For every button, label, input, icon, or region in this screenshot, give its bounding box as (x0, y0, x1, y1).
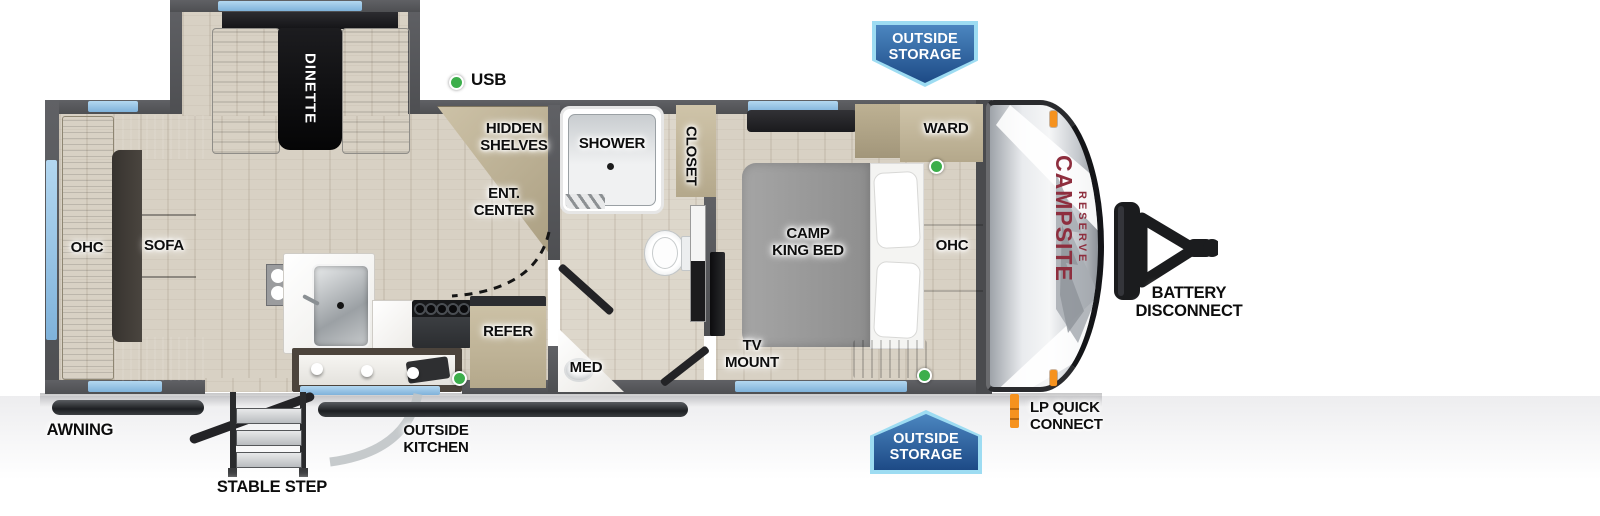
ohc-front-cabinet (920, 162, 983, 352)
badge-outside-storage-top-label: OUTSIDE STORAGE (889, 31, 962, 77)
knob-icon (311, 363, 323, 375)
stove (412, 300, 472, 348)
knob-icon (361, 365, 373, 377)
shower-threshold (565, 194, 605, 209)
kitchen-sink (312, 264, 370, 348)
window-bottom-bedroom (735, 381, 907, 392)
slide-window (218, 1, 362, 11)
badge-outside-storage-top: OUTSIDE STORAGE (872, 21, 978, 87)
burner-icon (438, 305, 446, 313)
burner-icon (427, 305, 435, 313)
window-bottom-rear (88, 381, 162, 392)
bath-cabinet (690, 205, 706, 322)
slide-wall-left (170, 0, 182, 114)
shower-label: SHOWER (572, 136, 652, 153)
lp-quick-connect-label: LP QUICK CONNECT (1030, 400, 1110, 433)
kitchen-counter-ext (372, 300, 416, 354)
med-label: MED (556, 360, 616, 377)
sofa-armrest-bottom (114, 337, 206, 381)
hidden-shelves-label: HIDDEN SHELVES (468, 121, 560, 154)
awning-tube-left (52, 400, 204, 415)
entry-step (228, 392, 308, 478)
bed-head-cabinet (855, 104, 903, 158)
lp-quick-connect-fitting (1010, 394, 1019, 428)
ohc-front-label: OHC (926, 238, 978, 255)
knob-icon (407, 367, 419, 379)
brand-name: CAMPSITE (1050, 155, 1077, 335)
dinette-label: DINETTE (302, 53, 319, 124)
roof-vent (747, 110, 857, 132)
closet-label: CLOSET (682, 120, 699, 192)
ohc-rear-label: OHC (62, 240, 112, 257)
window-rear-wall (46, 160, 57, 340)
dinette-table: DINETTE (278, 28, 342, 150)
usb-indicator-kitchen (452, 371, 467, 386)
burner-icon (460, 305, 468, 313)
clearance-light-bottom (1050, 370, 1057, 386)
entry-floor-patch (205, 378, 292, 392)
toilet (644, 230, 686, 276)
usb-indicator-dinette (449, 75, 464, 90)
refrigerator (470, 296, 546, 388)
front-cap: CAMPSITE RESERVE (986, 100, 1104, 392)
dinette-bench-right (342, 28, 410, 154)
awning-label: AWNING (38, 421, 122, 439)
pillow (873, 171, 921, 249)
tv (710, 252, 725, 336)
shower-drain-icon (607, 163, 614, 170)
shower (560, 106, 664, 214)
sofa-label: SOFA (134, 238, 194, 255)
sink-drain-icon (337, 302, 344, 309)
tv-mount-label: TV MOUNT (712, 338, 792, 371)
pillow (873, 261, 921, 339)
outside-kitchen-label: OUTSIDE KITCHEN (394, 423, 478, 456)
refer-label: REFER (478, 324, 538, 341)
bed-foot-bench (853, 340, 927, 378)
ward-label: WARD (916, 121, 976, 138)
badge-outside-storage-bottom-label: OUTSIDE STORAGE (890, 421, 963, 463)
ent-center-label: ENT. CENTER (462, 186, 546, 219)
slide-overhead-panel (222, 12, 398, 29)
window-outside-kitchen (300, 386, 440, 395)
battery-disconnect-label: BATTERY DISCONNECT (1120, 284, 1258, 320)
usb-indicator-bed-top (929, 159, 944, 174)
awning-tube-right (318, 402, 688, 417)
window-top-rear (88, 101, 138, 112)
brand-series: RESERVE (1076, 191, 1088, 301)
clearance-light-top (1050, 111, 1057, 127)
floorplan-canvas: DINETTE (0, 0, 1600, 516)
camp-king-bed-label: CAMP KING BED (758, 226, 858, 259)
stable-step-label: STABLE STEP (212, 478, 332, 496)
dinette-bench-left (212, 28, 280, 154)
bed-sheets (870, 163, 924, 349)
usb-indicator-bed-bottom (917, 368, 932, 383)
badge-outside-storage-bottom: OUTSIDE STORAGE (870, 410, 982, 474)
burner-icon (449, 305, 457, 313)
burner-icon (416, 305, 424, 313)
usb-label: USB (471, 71, 511, 90)
